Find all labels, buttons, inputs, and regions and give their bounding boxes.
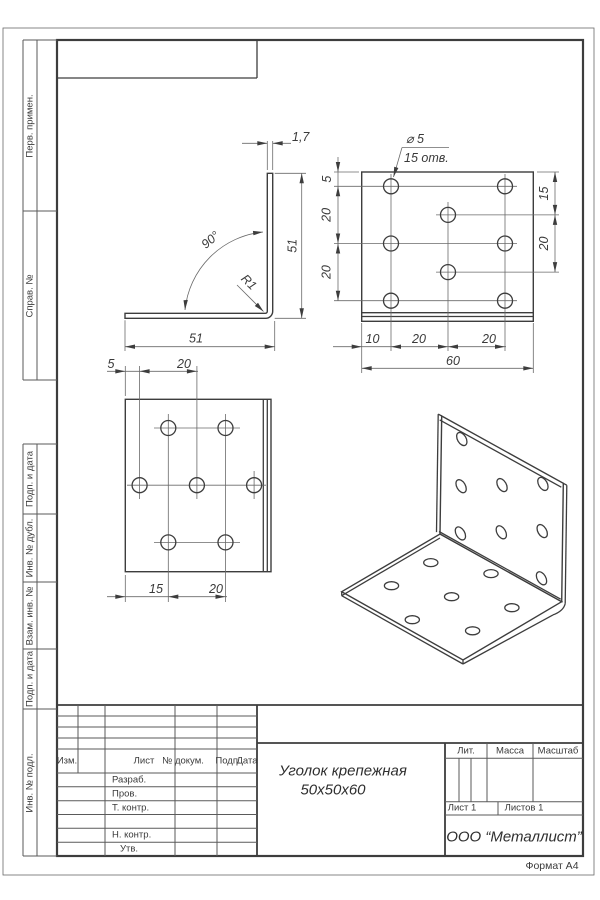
margin-column-boxes bbox=[23, 40, 57, 856]
dim-side-width: 51 bbox=[189, 332, 203, 346]
titleblock-title-line1: Уголок крепежная bbox=[279, 763, 407, 780]
margin-label-sprav-no: Справ. № bbox=[25, 274, 36, 317]
dim-plan-total-width: 60 bbox=[446, 354, 460, 368]
dim-front-bottom-1: 20 bbox=[208, 582, 223, 596]
view-isometric bbox=[342, 414, 567, 664]
titleblock-row-utv: Утв. bbox=[120, 844, 138, 855]
format-label: Формат А4 bbox=[525, 860, 578, 872]
margin-label-podp-data-2: Подп. и дата bbox=[25, 651, 36, 707]
titleblock-sheet: Лист 1 bbox=[448, 803, 477, 814]
dim-plan-bottom-0: 10 bbox=[366, 332, 380, 346]
titleblock-header-izm: Изм. bbox=[57, 756, 77, 767]
margin-label-podp-data-1: Подп. и дата bbox=[25, 451, 36, 507]
margin-label-inv-podl: Инв. № подл. bbox=[25, 753, 36, 812]
dim-side-thickness: 1,7 bbox=[292, 130, 310, 144]
titleblock-scale-label: Масштаб bbox=[538, 745, 579, 756]
dim-plan-hole-count: 15 отв. bbox=[404, 151, 449, 165]
view-side: 1,7 51 51 90° R1 bbox=[125, 130, 310, 351]
dim-plan-right-1: 20 bbox=[537, 237, 551, 252]
dim-front-top-0: 5 bbox=[108, 357, 115, 371]
titleblock-lit-label: Лит. bbox=[457, 745, 474, 756]
dim-plan-left-0: 5 bbox=[320, 176, 334, 183]
titleblock-row-tkontr: Т. контр. bbox=[112, 802, 149, 813]
margin-label-perv-primen: Перв. примен. bbox=[25, 94, 36, 157]
view-plan: ⌀ 5 15 отв. 5 20 20 15 20 bbox=[320, 132, 560, 373]
dim-plan-right-0: 15 bbox=[537, 187, 551, 201]
titleblock-title-line2: 50х50х60 bbox=[300, 782, 365, 799]
titleblock-sheets: Листов 1 bbox=[505, 803, 544, 814]
titleblock-header-dokum: № докум. bbox=[162, 756, 204, 767]
dim-front-top-1: 20 bbox=[176, 357, 191, 371]
dim-plan-bottom-2: 20 bbox=[481, 332, 496, 346]
titleblock-company: ООО “Металлист” bbox=[446, 828, 582, 845]
titleblock-row-razrab: Разраб. bbox=[112, 774, 146, 785]
dim-plan-bottom-1: 20 bbox=[411, 332, 426, 346]
drawing-sheet: 1,7 51 51 90° R1 bbox=[0, 0, 600, 900]
dim-plan-left-1: 20 bbox=[320, 208, 334, 223]
margin-label-inv-dubl: Инв. № дубл. bbox=[25, 519, 36, 578]
titleblock-header-data: Дата bbox=[236, 756, 257, 767]
titleblock-header-list: Лист bbox=[134, 756, 155, 767]
dim-plan-left-2: 20 bbox=[320, 265, 334, 280]
view-front: 5 20 15 20 bbox=[107, 357, 271, 602]
dim-front-bottom-0: 15 bbox=[149, 582, 163, 596]
dim-side-angle: 90° bbox=[199, 228, 222, 251]
titleblock-mass-label: Масса bbox=[496, 745, 524, 756]
titleblock-row-prov: Пров. bbox=[112, 788, 137, 799]
margin-label-vzam-inv: Взам. инв. № bbox=[25, 586, 36, 645]
dim-side-height: 51 bbox=[286, 239, 300, 253]
dim-plan-hole-dia: ⌀ 5 bbox=[406, 132, 424, 146]
titleblock-row-nkontr: Н. контр. bbox=[112, 830, 151, 841]
